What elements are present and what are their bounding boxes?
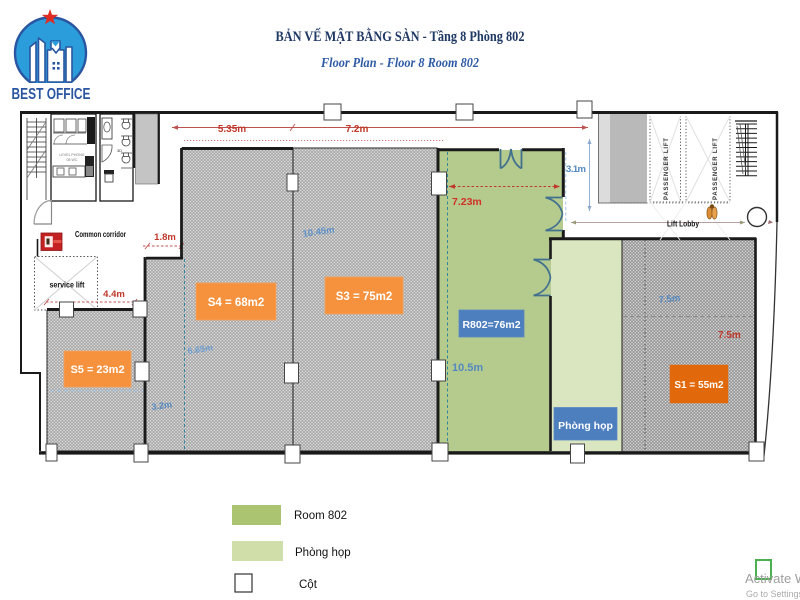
svg-text:S1 = 55m2: S1 = 55m2 [674, 380, 724, 391]
svg-text:3D: 3D [117, 148, 122, 153]
svg-text:Room 802: Room 802 [294, 510, 347, 522]
svg-text:BEST OFFICE: BEST OFFICE [12, 86, 91, 103]
svg-text:Phòng họp: Phòng họp [295, 547, 351, 559]
svg-text:5.35m: 5.35m [218, 124, 246, 135]
svg-text:1.8m: 1.8m [154, 232, 176, 243]
svg-text:Common corridor: Common corridor [75, 230, 126, 239]
svg-text:7.2m: 7.2m [346, 124, 369, 135]
svg-text:08 WC: 08 WC [67, 158, 78, 162]
svg-text:10.5m: 10.5m [452, 362, 483, 374]
svg-text:7.23m: 7.23m [452, 196, 482, 208]
svg-text:S3 = 75m2: S3 = 75m2 [336, 291, 393, 303]
svg-text:7.5m: 7.5m [658, 293, 681, 306]
svg-text:PASSENGER LIFT: PASSENGER LIFT [713, 137, 719, 200]
svg-text:Go to Settings t: Go to Settings t [746, 589, 800, 599]
svg-text:4.4m: 4.4m [103, 289, 125, 300]
svg-text:LEVEL PHONG: LEVEL PHONG [59, 153, 84, 157]
svg-text:PASSENGER LIFT: PASSENGER LIFT [664, 137, 670, 200]
svg-text:7.5m: 7.5m [718, 330, 741, 341]
svg-text:Floor Plan - Floor 8 Room 802: Floor Plan - Floor 8 Room 802 [320, 55, 479, 70]
svg-text:BẢN VẾ MẬT BẰNG SÀN - Tầng 8 P: BẢN VẾ MẬT BẰNG SÀN - Tầng 8 Phòng 802 [276, 28, 525, 45]
svg-text:S4 = 68m2: S4 = 68m2 [208, 297, 265, 309]
svg-text:Activate Win: Activate Win [745, 571, 800, 586]
svg-text:3.1m: 3.1m [566, 164, 586, 175]
svg-text:S5 = 23m2: S5 = 23m2 [70, 364, 124, 376]
svg-text:Lift Lobby: Lift Lobby [667, 220, 699, 229]
svg-text:service lift: service lift [50, 281, 85, 290]
svg-text:Cột: Cột [299, 579, 318, 591]
svg-text:Phòng họp: Phòng họp [558, 420, 613, 432]
svg-text:R802=76m2: R802=76m2 [462, 319, 520, 331]
